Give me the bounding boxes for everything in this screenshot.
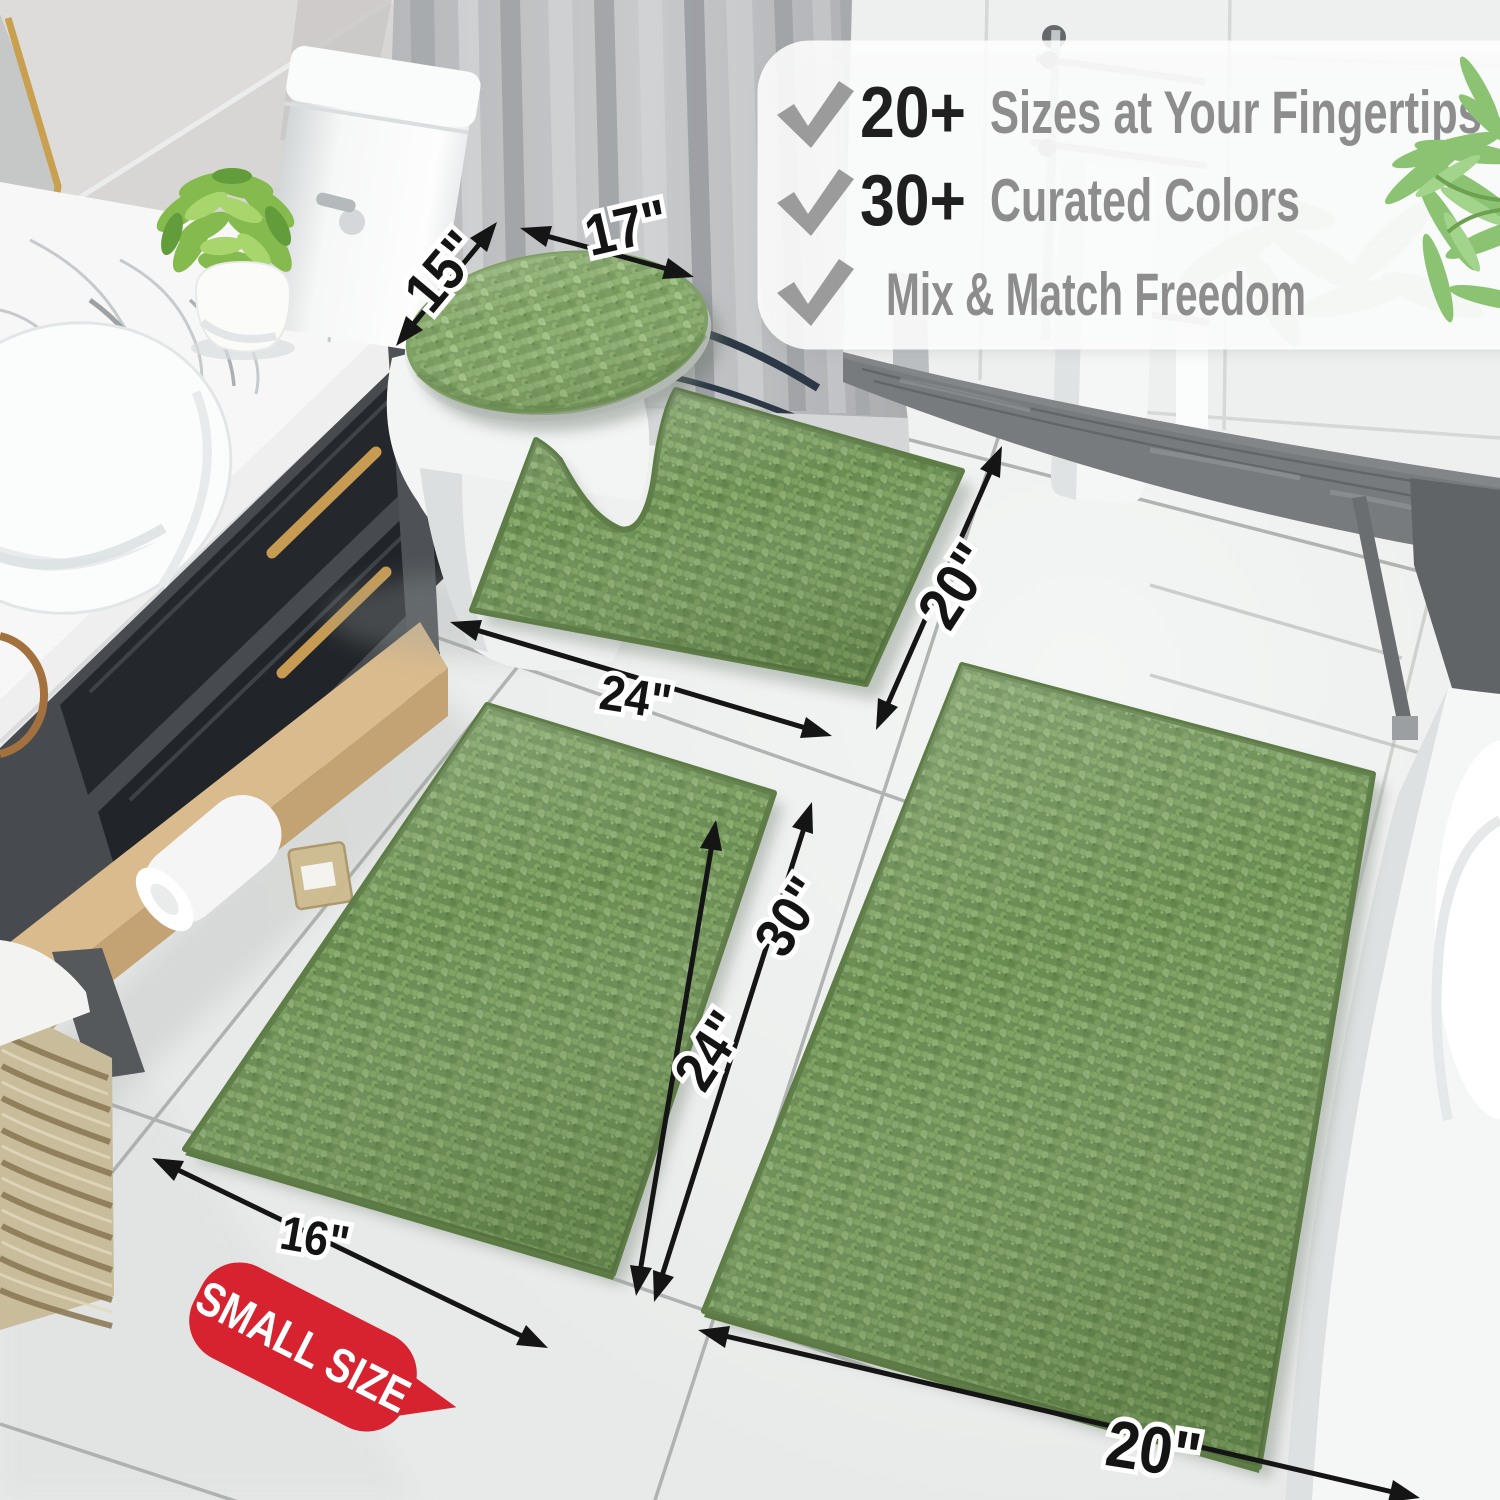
svg-text:20+: 20+ — [860, 73, 966, 153]
svg-text:Curated Colors: Curated Colors — [990, 167, 1300, 234]
svg-text:20": 20" — [1101, 1406, 1206, 1493]
svg-text:30+: 30+ — [860, 161, 966, 241]
svg-text:Sizes at Your Fingertips: Sizes at Your Fingertips — [990, 79, 1482, 146]
svg-text:24": 24" — [596, 665, 675, 731]
svg-text:Mix & Match Freedom: Mix & Match Freedom — [886, 261, 1306, 328]
